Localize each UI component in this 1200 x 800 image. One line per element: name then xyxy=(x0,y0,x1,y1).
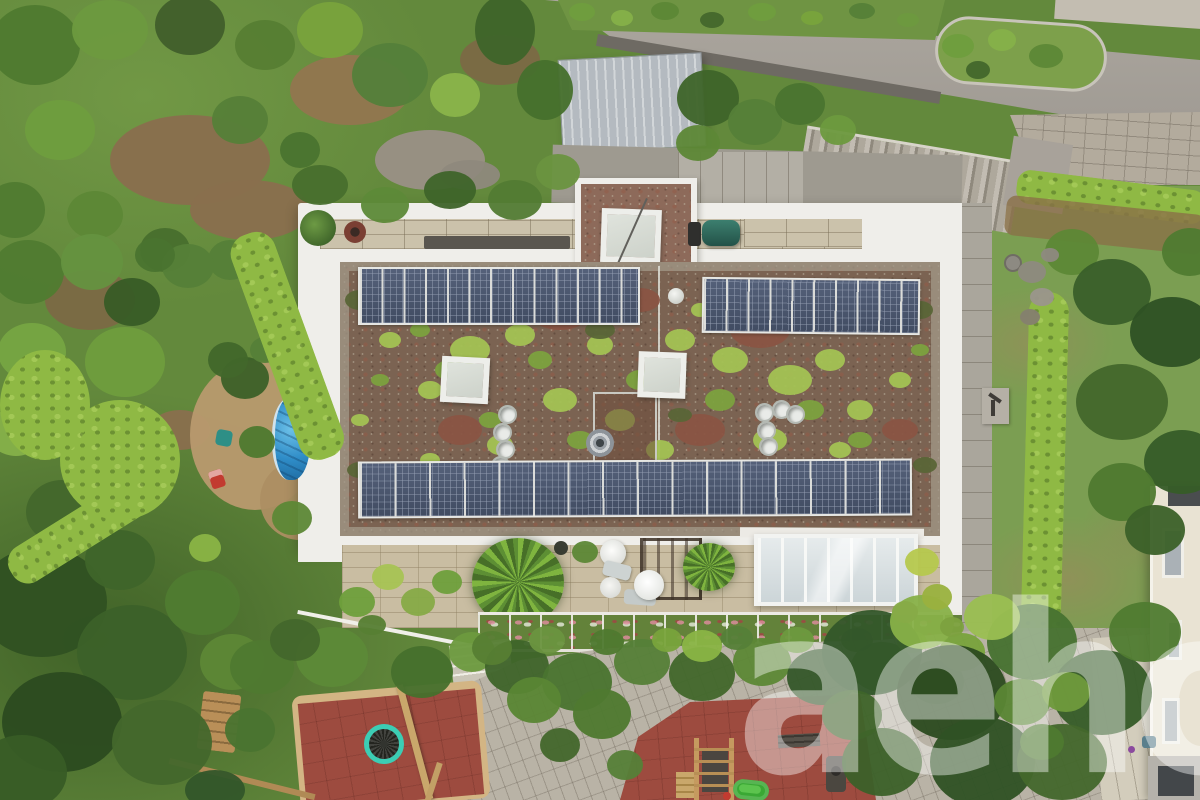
tree xyxy=(1125,505,1185,555)
tree xyxy=(721,626,753,650)
tree xyxy=(897,13,919,27)
tree xyxy=(748,3,776,21)
tree xyxy=(801,11,823,25)
trimmed-hedge-mass xyxy=(0,350,90,460)
tree xyxy=(536,154,580,190)
tree xyxy=(922,584,952,610)
tree xyxy=(1041,248,1059,262)
tree xyxy=(994,679,1050,725)
tree xyxy=(507,677,561,723)
tree xyxy=(297,2,363,58)
tree xyxy=(189,534,221,562)
tree xyxy=(940,617,964,637)
tree xyxy=(780,627,814,653)
tree xyxy=(569,3,595,21)
tree xyxy=(225,708,275,752)
tree xyxy=(651,2,679,20)
tree xyxy=(165,570,240,635)
tree xyxy=(488,180,542,220)
tree xyxy=(235,20,295,70)
tree xyxy=(1020,309,1040,325)
tree xyxy=(0,240,64,304)
tree xyxy=(135,238,175,272)
tree xyxy=(892,601,918,623)
tree xyxy=(964,594,1020,640)
tree xyxy=(424,171,476,209)
tree xyxy=(432,570,462,594)
tree xyxy=(775,83,825,125)
tree xyxy=(1029,44,1063,68)
tree xyxy=(1018,261,1046,283)
tree xyxy=(728,99,782,145)
tree xyxy=(25,100,95,160)
tree xyxy=(472,631,512,665)
tree xyxy=(988,29,1016,51)
tree xyxy=(239,426,275,458)
tree xyxy=(820,115,856,145)
tree xyxy=(611,10,633,26)
tree xyxy=(0,182,45,238)
tree xyxy=(401,588,435,616)
tree xyxy=(590,629,624,655)
tree xyxy=(905,548,939,576)
tree xyxy=(573,689,631,739)
tree xyxy=(155,0,225,55)
tree xyxy=(185,770,245,800)
tree xyxy=(676,125,720,161)
tree xyxy=(572,541,598,563)
tree xyxy=(849,3,875,19)
tree xyxy=(700,12,724,28)
tree xyxy=(1030,288,1054,306)
tree xyxy=(1109,602,1181,662)
tree xyxy=(208,342,248,378)
tree xyxy=(339,587,375,617)
tree xyxy=(822,690,882,740)
tree xyxy=(966,61,990,79)
tree xyxy=(682,630,722,662)
tree xyxy=(529,626,565,654)
tree xyxy=(1076,364,1168,440)
tree xyxy=(352,43,428,107)
tree xyxy=(372,564,404,590)
tree xyxy=(475,0,535,65)
tree xyxy=(361,187,409,223)
tree xyxy=(391,646,453,698)
tree xyxy=(72,0,148,60)
tree xyxy=(104,278,160,326)
tree xyxy=(607,750,643,780)
aerial-photo: aeho xyxy=(0,0,1200,800)
tree xyxy=(67,191,123,239)
tree xyxy=(292,165,348,205)
tree xyxy=(517,60,573,120)
tree xyxy=(270,619,320,661)
tree xyxy=(1020,724,1064,760)
tree xyxy=(358,615,386,635)
tree xyxy=(540,728,580,762)
tree xyxy=(1162,228,1200,276)
tree xyxy=(61,234,123,290)
tree xyxy=(212,96,268,144)
vegetation-layer xyxy=(0,0,1200,800)
tree xyxy=(942,34,974,58)
tree xyxy=(1042,672,1090,712)
tree xyxy=(1130,297,1200,367)
tree xyxy=(85,327,165,397)
tree xyxy=(652,628,682,652)
tree xyxy=(272,501,312,535)
tree xyxy=(280,132,320,168)
tree xyxy=(0,5,80,85)
tree xyxy=(112,700,212,785)
tree xyxy=(430,73,480,117)
